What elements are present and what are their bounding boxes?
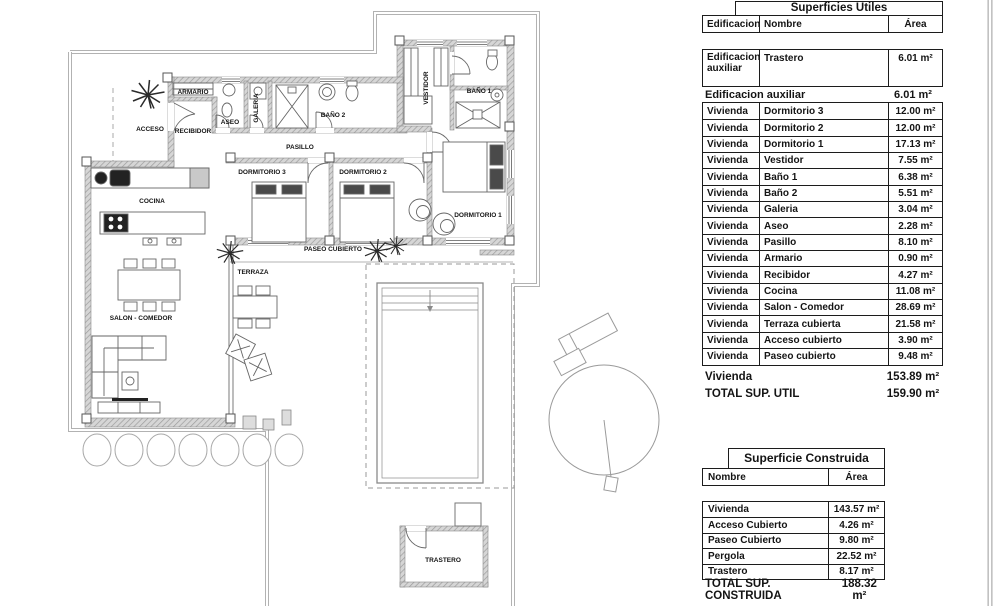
room-label-bano-2: BAÑO 2	[321, 110, 346, 119]
table-cell: 17.13 m²	[888, 137, 942, 152]
table-row: ViviendaArmario0.90 m²	[703, 250, 942, 266]
total-sup-util-row: TOTAL SUP. UTIL 159.90 m²	[702, 385, 943, 403]
table-cell: Vivienda	[703, 502, 828, 517]
room-label-terraza: TERRAZA	[237, 269, 268, 276]
table-row: ViviendaDormitorio 212.00 m²	[703, 119, 942, 135]
aseo-fixtures	[222, 84, 235, 117]
total-construida-row: TOTAL SUP. CONSTRUIDA 188.32 m²	[702, 583, 885, 598]
superficie-construida-header: Nombre Área	[702, 468, 885, 486]
table-cell: Cocina	[759, 284, 888, 299]
room-label-pasillo: PASILLO	[286, 144, 314, 151]
table-cell: 0.90 m²	[888, 251, 942, 266]
table-cell: Armario	[759, 251, 888, 266]
table-cell: Salon - Comedor	[759, 300, 888, 315]
column-header-area: Área	[888, 16, 942, 32]
table-cell: Galeria	[759, 202, 888, 217]
room-label-dormitorio-3: DORMITORIO 3	[238, 169, 286, 176]
table-cell: 8.10 m²	[888, 235, 942, 250]
construida-rows-box: Vivienda143.57 m²Acceso Cubierto4.26 m²P…	[702, 501, 885, 580]
table-cell: 7.55 m²	[888, 153, 942, 168]
trastero-building	[400, 503, 488, 587]
aux-subtotal-value: 6.01 m²	[883, 89, 943, 101]
table-cell: Pasillo	[759, 235, 888, 250]
table-cell: Trastero	[759, 50, 888, 86]
room-label-cocina: COCINA	[139, 198, 165, 205]
room-label-recibidor: RECIBIDOR	[175, 128, 212, 135]
bed-dormitorio-2	[340, 182, 394, 242]
floor-plan-page: ARMARIO ACCESO RECIBIDOR ASEO GALERIA BA…	[0, 0, 1001, 606]
vivienda-subtotal-value: 153.89 m²	[883, 371, 943, 383]
table-row: ViviendaGaleria3.04 m²	[703, 201, 942, 217]
table-row: Paseo Cubierto9.80 m²	[703, 533, 884, 548]
tv-bench	[98, 398, 160, 413]
total-sup-util-label: TOTAL SUP. UTIL	[702, 388, 799, 400]
table-cell: Paseo Cubierto	[703, 534, 828, 548]
table-cell: 21.58 m²	[888, 316, 942, 331]
table-row: Pergola22.52 m²	[703, 548, 884, 563]
table-cell: 5.51 m²	[888, 186, 942, 201]
table-cell: Dormitorio 1	[759, 137, 888, 152]
table-cell: 22.52 m²	[828, 549, 884, 563]
table-cell: Recibidor	[759, 267, 888, 282]
table-row: Edificacion auxiliar Trastero 6.01 m²	[703, 50, 942, 86]
table-cell: 3.04 m²	[888, 202, 942, 217]
table-cell: Paseo cubierto	[759, 349, 888, 364]
room-label-aseo: ASEO	[221, 119, 239, 126]
table-cell: 12.00 m²	[888, 103, 942, 119]
aux-group-box: Edificacion auxiliar Trastero 6.01 m²	[702, 49, 943, 87]
room-label-acceso: ACCESO	[136, 126, 164, 133]
table-cell: Vivienda	[703, 137, 759, 152]
table-cell: 28.69 m²	[888, 300, 942, 315]
dining-table	[118, 259, 180, 311]
sofa	[92, 336, 166, 398]
aux-subtotal-label: Edificacion auxiliar	[702, 89, 805, 101]
table-row: ViviendaBaño 16.38 m²	[703, 168, 942, 184]
table-cell: Pergola	[703, 549, 828, 563]
table-cell: Vivienda	[703, 349, 759, 364]
vivienda-rows-box: ViviendaDormitorio 312.00 m²ViviendaDorm…	[702, 102, 943, 366]
table-cell: Baño 2	[759, 186, 888, 201]
table-row: ViviendaTerraza cubierta21.58 m²	[703, 315, 942, 331]
column-header-edificacion: Edificacion	[703, 16, 759, 32]
table-cell: 9.80 m²	[828, 534, 884, 548]
table-cell: Vivienda	[703, 169, 759, 184]
table-cell: 11.08 m²	[888, 284, 942, 299]
room-label-trastero: TRASTERO	[425, 557, 461, 564]
pool	[377, 283, 483, 483]
room-label-armario: ARMARIO	[177, 89, 208, 96]
table-cell: Vivienda	[703, 153, 759, 168]
room-label-salon-comedor: SALON - COMEDOR	[110, 315, 173, 322]
table-row: ViviendaAseo2.28 m²	[703, 217, 942, 233]
table-cell: 2.28 m²	[888, 218, 942, 233]
table-cell: Vivienda	[703, 218, 759, 233]
garden-tree	[549, 313, 659, 492]
table-row: ViviendaCocina11.08 m²	[703, 283, 942, 299]
table-row: ViviendaRecibidor4.27 m²	[703, 266, 942, 282]
table-cell: 143.57 m²	[828, 502, 884, 517]
superficie-construida-table: Superficie Construida Nombre Área Vivien…	[702, 448, 885, 598]
table-cell: Acceso cubierto	[759, 333, 888, 348]
entrance-door-arc	[174, 103, 195, 131]
table-cell: Vivienda	[703, 120, 759, 135]
table-cell: Vestidor	[759, 153, 888, 168]
total-construida-value: 188.32 m²	[834, 578, 885, 602]
table-row: ViviendaVestidor7.55 m²	[703, 152, 942, 168]
room-label-dormitorio-1: DORMITORIO 1	[454, 212, 502, 219]
table-cell: Vivienda	[703, 300, 759, 315]
table-cell: Acceso Cubierto	[703, 518, 828, 532]
table-cell: Vivienda	[703, 202, 759, 217]
table-cell: Baño 1	[759, 169, 888, 184]
room-label-dormitorio-2: DORMITORIO 2	[339, 169, 387, 176]
stepping-pads	[243, 410, 291, 430]
table-cell: Dormitorio 3	[759, 103, 888, 119]
table-cell: Vivienda	[703, 235, 759, 250]
superficies-utiles-header: Edificacion Nombre Área	[702, 15, 943, 33]
table-cell: Vivienda	[703, 103, 759, 119]
table-row: Acceso Cubierto4.26 m²	[703, 517, 884, 532]
room-label-vestidor: VESTIDOR	[423, 71, 430, 105]
table-cell: 6.38 m²	[888, 169, 942, 184]
table-row: ViviendaAcceso cubierto3.90 m²	[703, 332, 942, 348]
table-cell: Vivienda	[703, 284, 759, 299]
column-header-nombre: Nombre	[759, 16, 888, 32]
trastero-porch	[455, 503, 481, 526]
table-cell: Vivienda	[703, 267, 759, 282]
bano2-fixtures	[276, 81, 358, 128]
superficies-utiles-title: Superficies Utiles	[735, 1, 943, 15]
kitchen-fixtures	[91, 168, 209, 245]
vivienda-subtotal-row: Vivienda 153.89 m²	[702, 369, 943, 385]
table-row: ViviendaPasillo8.10 m²	[703, 234, 942, 250]
table-row: ViviendaDormitorio 117.13 m²	[703, 136, 942, 152]
table-row: ViviendaPaseo cubierto9.48 m²	[703, 348, 942, 364]
bushes	[83, 434, 303, 466]
table-cell: Trastero	[703, 565, 828, 579]
table-cell: 3.90 m²	[888, 333, 942, 348]
table-cell: Edificacion auxiliar	[703, 50, 759, 86]
table-row: Vivienda143.57 m²	[703, 502, 884, 517]
table-cell: 12.00 m²	[888, 120, 942, 135]
table-row: ViviendaDormitorio 312.00 m²	[703, 103, 942, 119]
table-row: ViviendaSalon - Comedor28.69 m²	[703, 299, 942, 315]
total-sup-util-value: 159.90 m²	[883, 388, 943, 400]
table-cell: Dormitorio 2	[759, 120, 888, 135]
table-cell: Vivienda	[703, 186, 759, 201]
room-label-galeria: GALERIA	[253, 93, 260, 123]
room-label-bano-1: BAÑO 1	[467, 86, 492, 95]
superficies-utiles-table: Superficies Utiles Edificacion Nombre Ár…	[702, 1, 943, 403]
table-row: Trastero8.17 m²	[703, 564, 884, 579]
table-cell: Vivienda	[703, 316, 759, 331]
table-cell: 8.17 m²	[828, 565, 884, 579]
table-cell: 9.48 m²	[888, 349, 942, 364]
table-cell: Vivienda	[703, 251, 759, 266]
table-cell: Aseo	[759, 218, 888, 233]
aux-subtotal-row: Edificacion auxiliar 6.01 m²	[702, 88, 943, 101]
bed-dormitorio-3	[252, 182, 306, 242]
column-header-area: Área	[828, 469, 884, 485]
room-label-paseo-cubierto: PASEO CUBIERTO	[304, 246, 362, 253]
table-cell: 4.26 m²	[828, 518, 884, 532]
table-row: ViviendaBaño 25.51 m²	[703, 185, 942, 201]
table-cell: 4.27 m²	[888, 267, 942, 282]
vivienda-subtotal-label: Vivienda	[702, 371, 752, 383]
table-cell: Vivienda	[703, 333, 759, 348]
total-construida-label: TOTAL SUP. CONSTRUIDA	[702, 578, 834, 602]
column-header-nombre: Nombre	[703, 469, 828, 485]
superficie-construida-title: Superficie Construida	[728, 448, 885, 468]
table-cell: 6.01 m²	[888, 50, 942, 86]
table-cell: Terraza cubierta	[759, 316, 888, 331]
